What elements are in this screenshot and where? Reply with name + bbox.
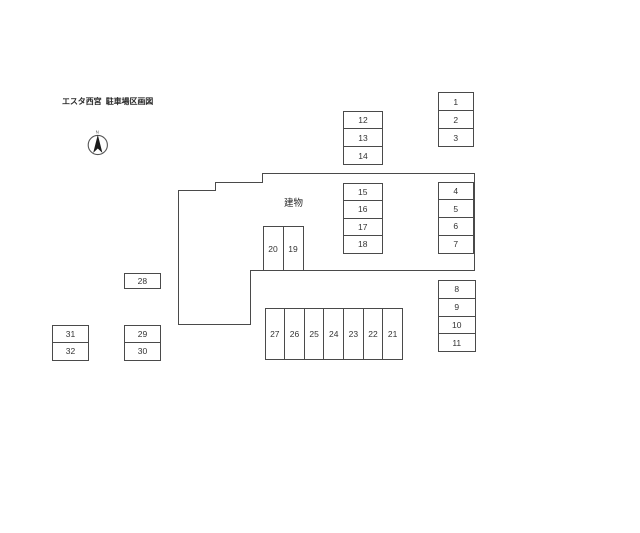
svg-text:N: N: [96, 130, 99, 135]
